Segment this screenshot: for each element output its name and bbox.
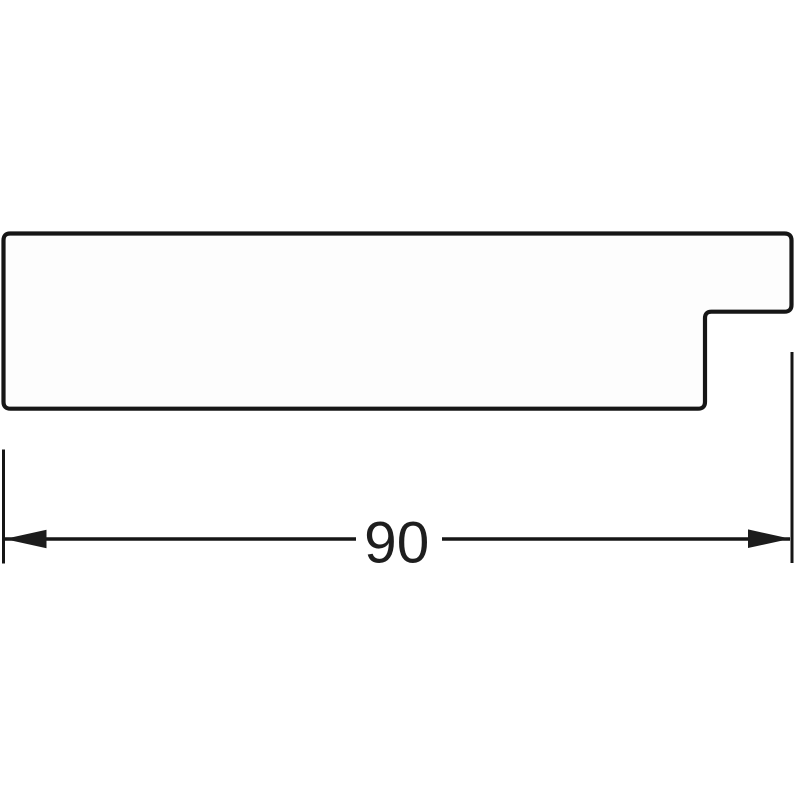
- svg-text:90: 90: [364, 510, 429, 575]
